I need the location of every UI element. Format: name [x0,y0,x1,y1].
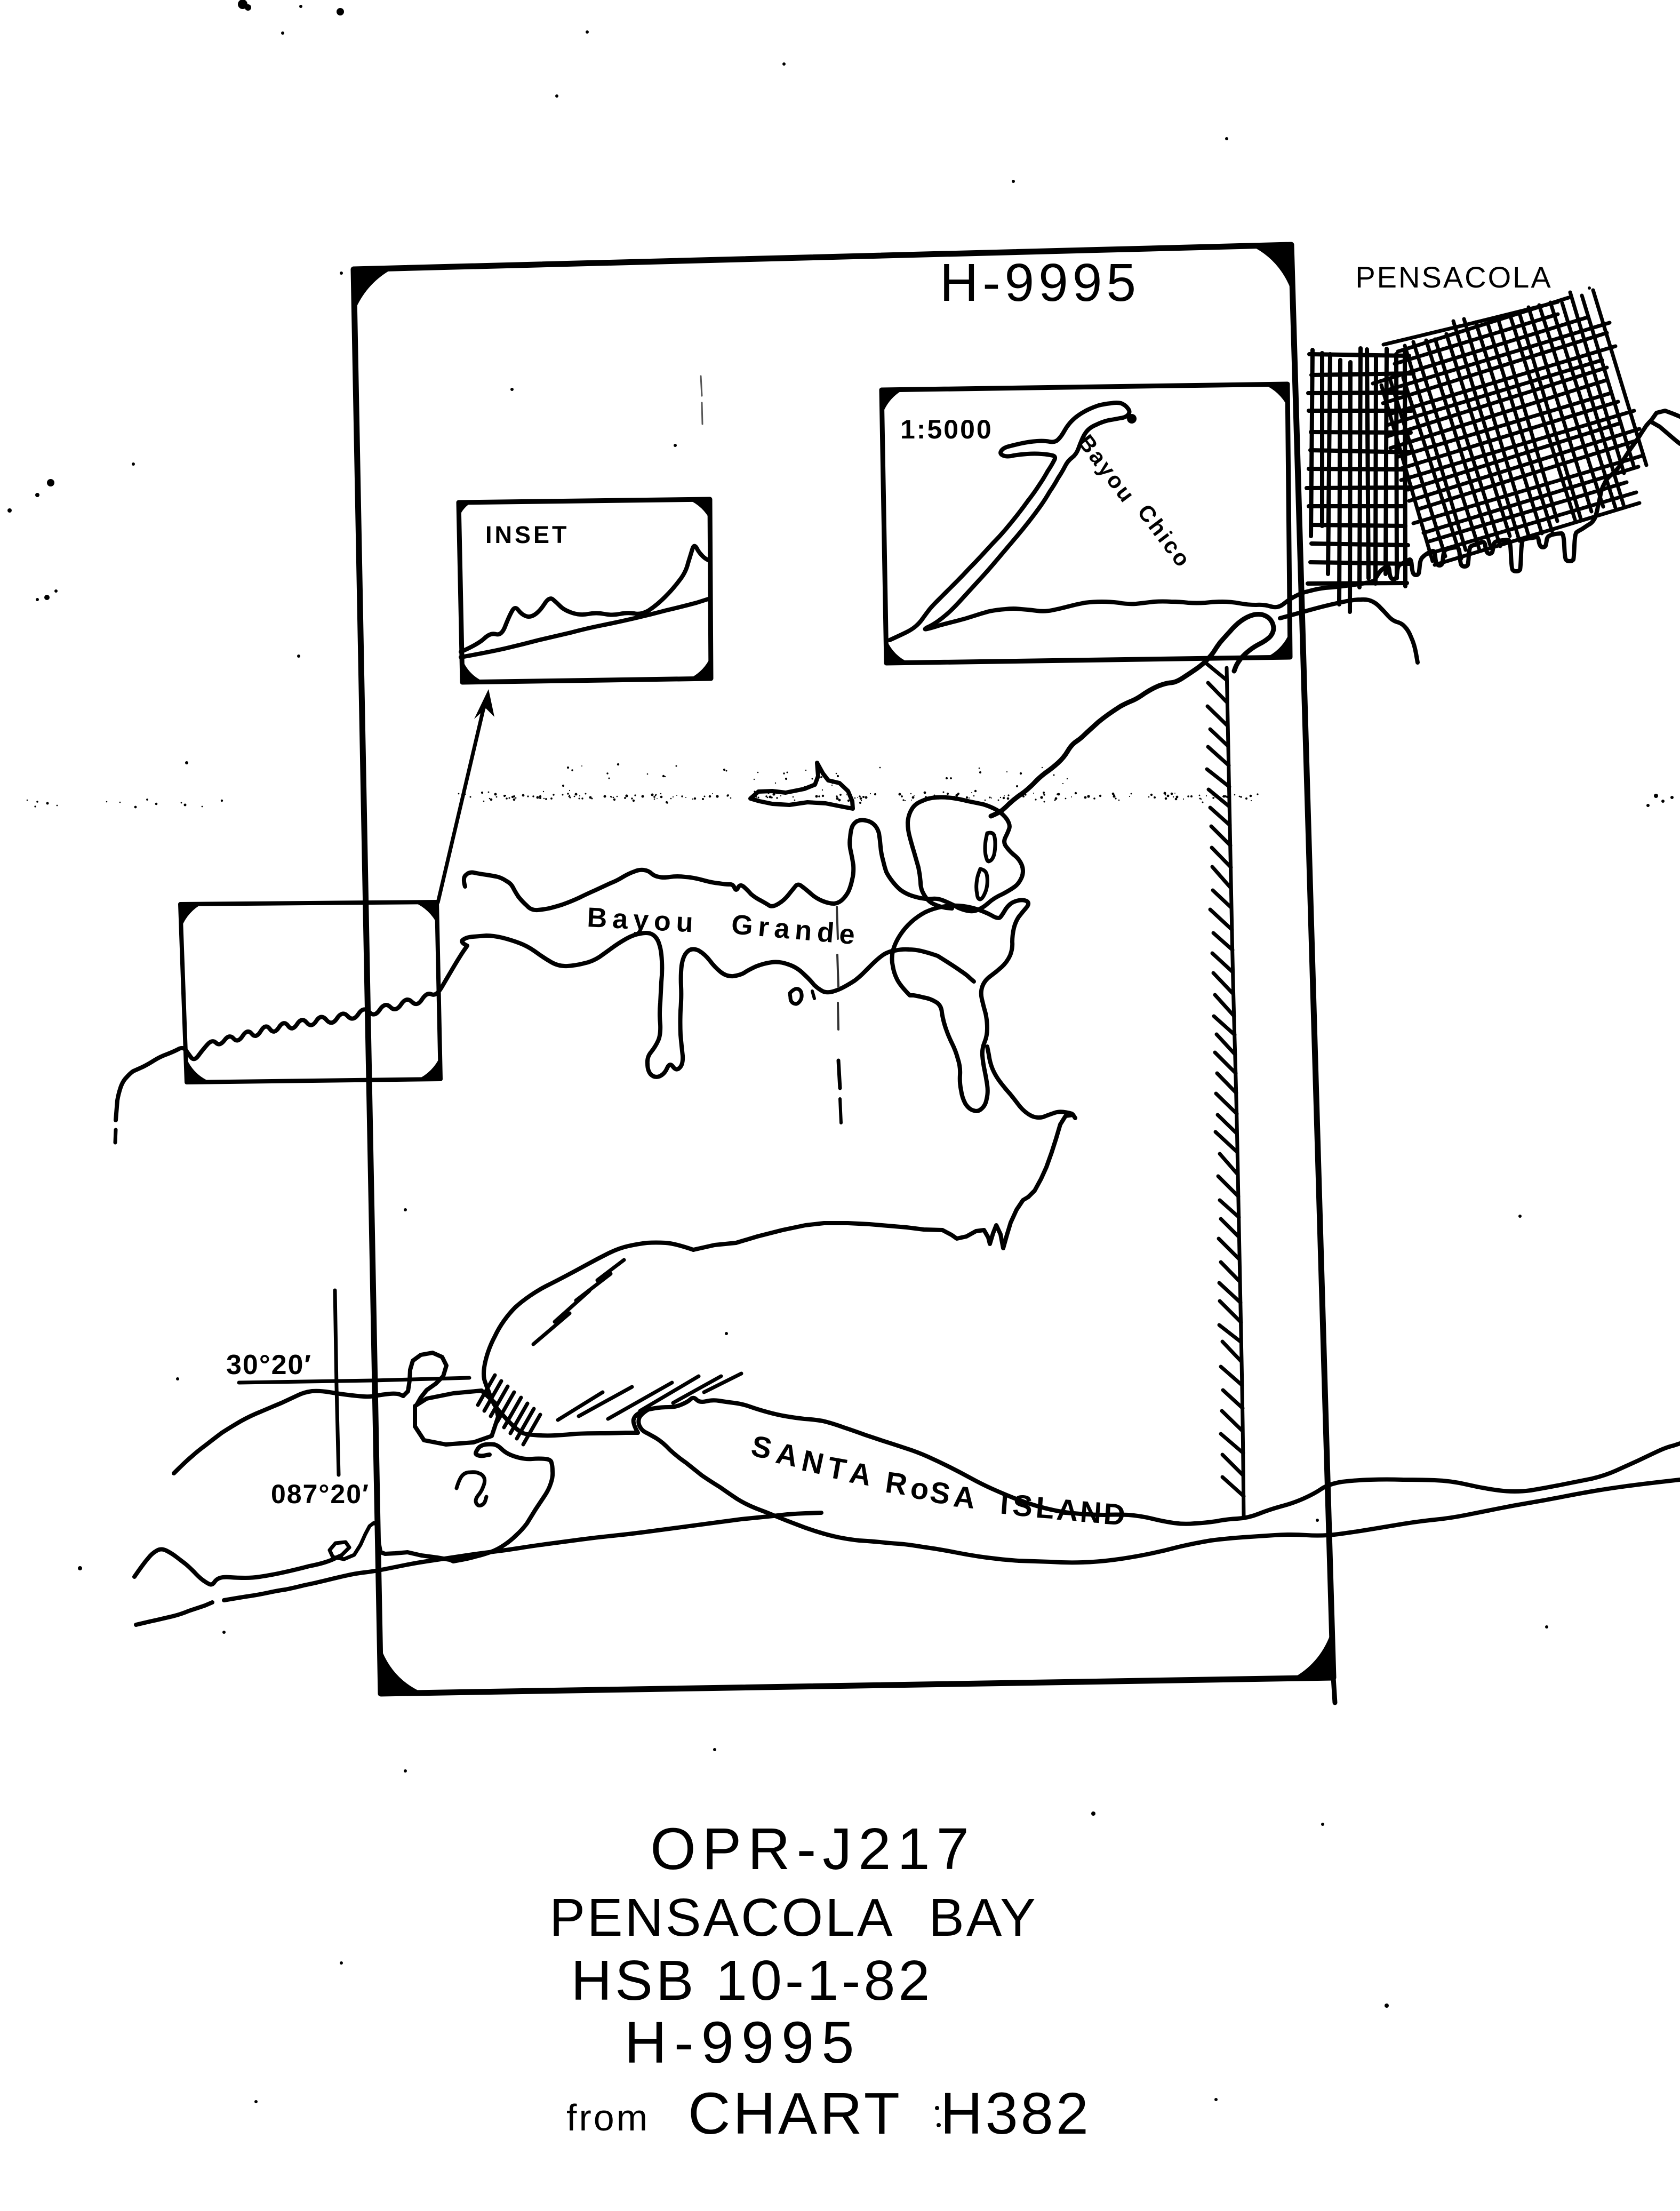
svg-text:CHART H382: CHART H382 [688,2081,1091,2146]
svg-text:from: from [566,2097,650,2138]
svg-text:Bayou: Bayou [586,902,699,939]
svg-text:H-9995: H-9995 [940,253,1140,313]
svg-text:PENSACOLA: PENSACOLA [1355,260,1552,294]
svg-text:1:5000: 1:5000 [900,414,993,444]
svg-text:D: D [1102,1497,1126,1532]
svg-text:N: N [1079,1495,1103,1530]
svg-text:S: S [1012,1488,1034,1523]
svg-text:INSET: INSET [485,521,570,548]
svg-text:H-9995: H-9995 [625,2010,862,2076]
svg-text:A: A [952,1479,977,1515]
svg-text:PENSACOLA BAY: PENSACOLA BAY [549,1888,1038,1947]
svg-text:OPR-J217: OPR-J217 [650,1816,975,1882]
svg-text:HSB 10-1-82: HSB 10-1-82 [571,1949,933,2012]
svg-text:A: A [1055,1492,1079,1528]
svg-text:30°20′: 30°20′ [226,1350,312,1380]
svg-text:087°20′: 087°20′ [271,1479,370,1509]
svg-text:L: L [1035,1490,1055,1525]
